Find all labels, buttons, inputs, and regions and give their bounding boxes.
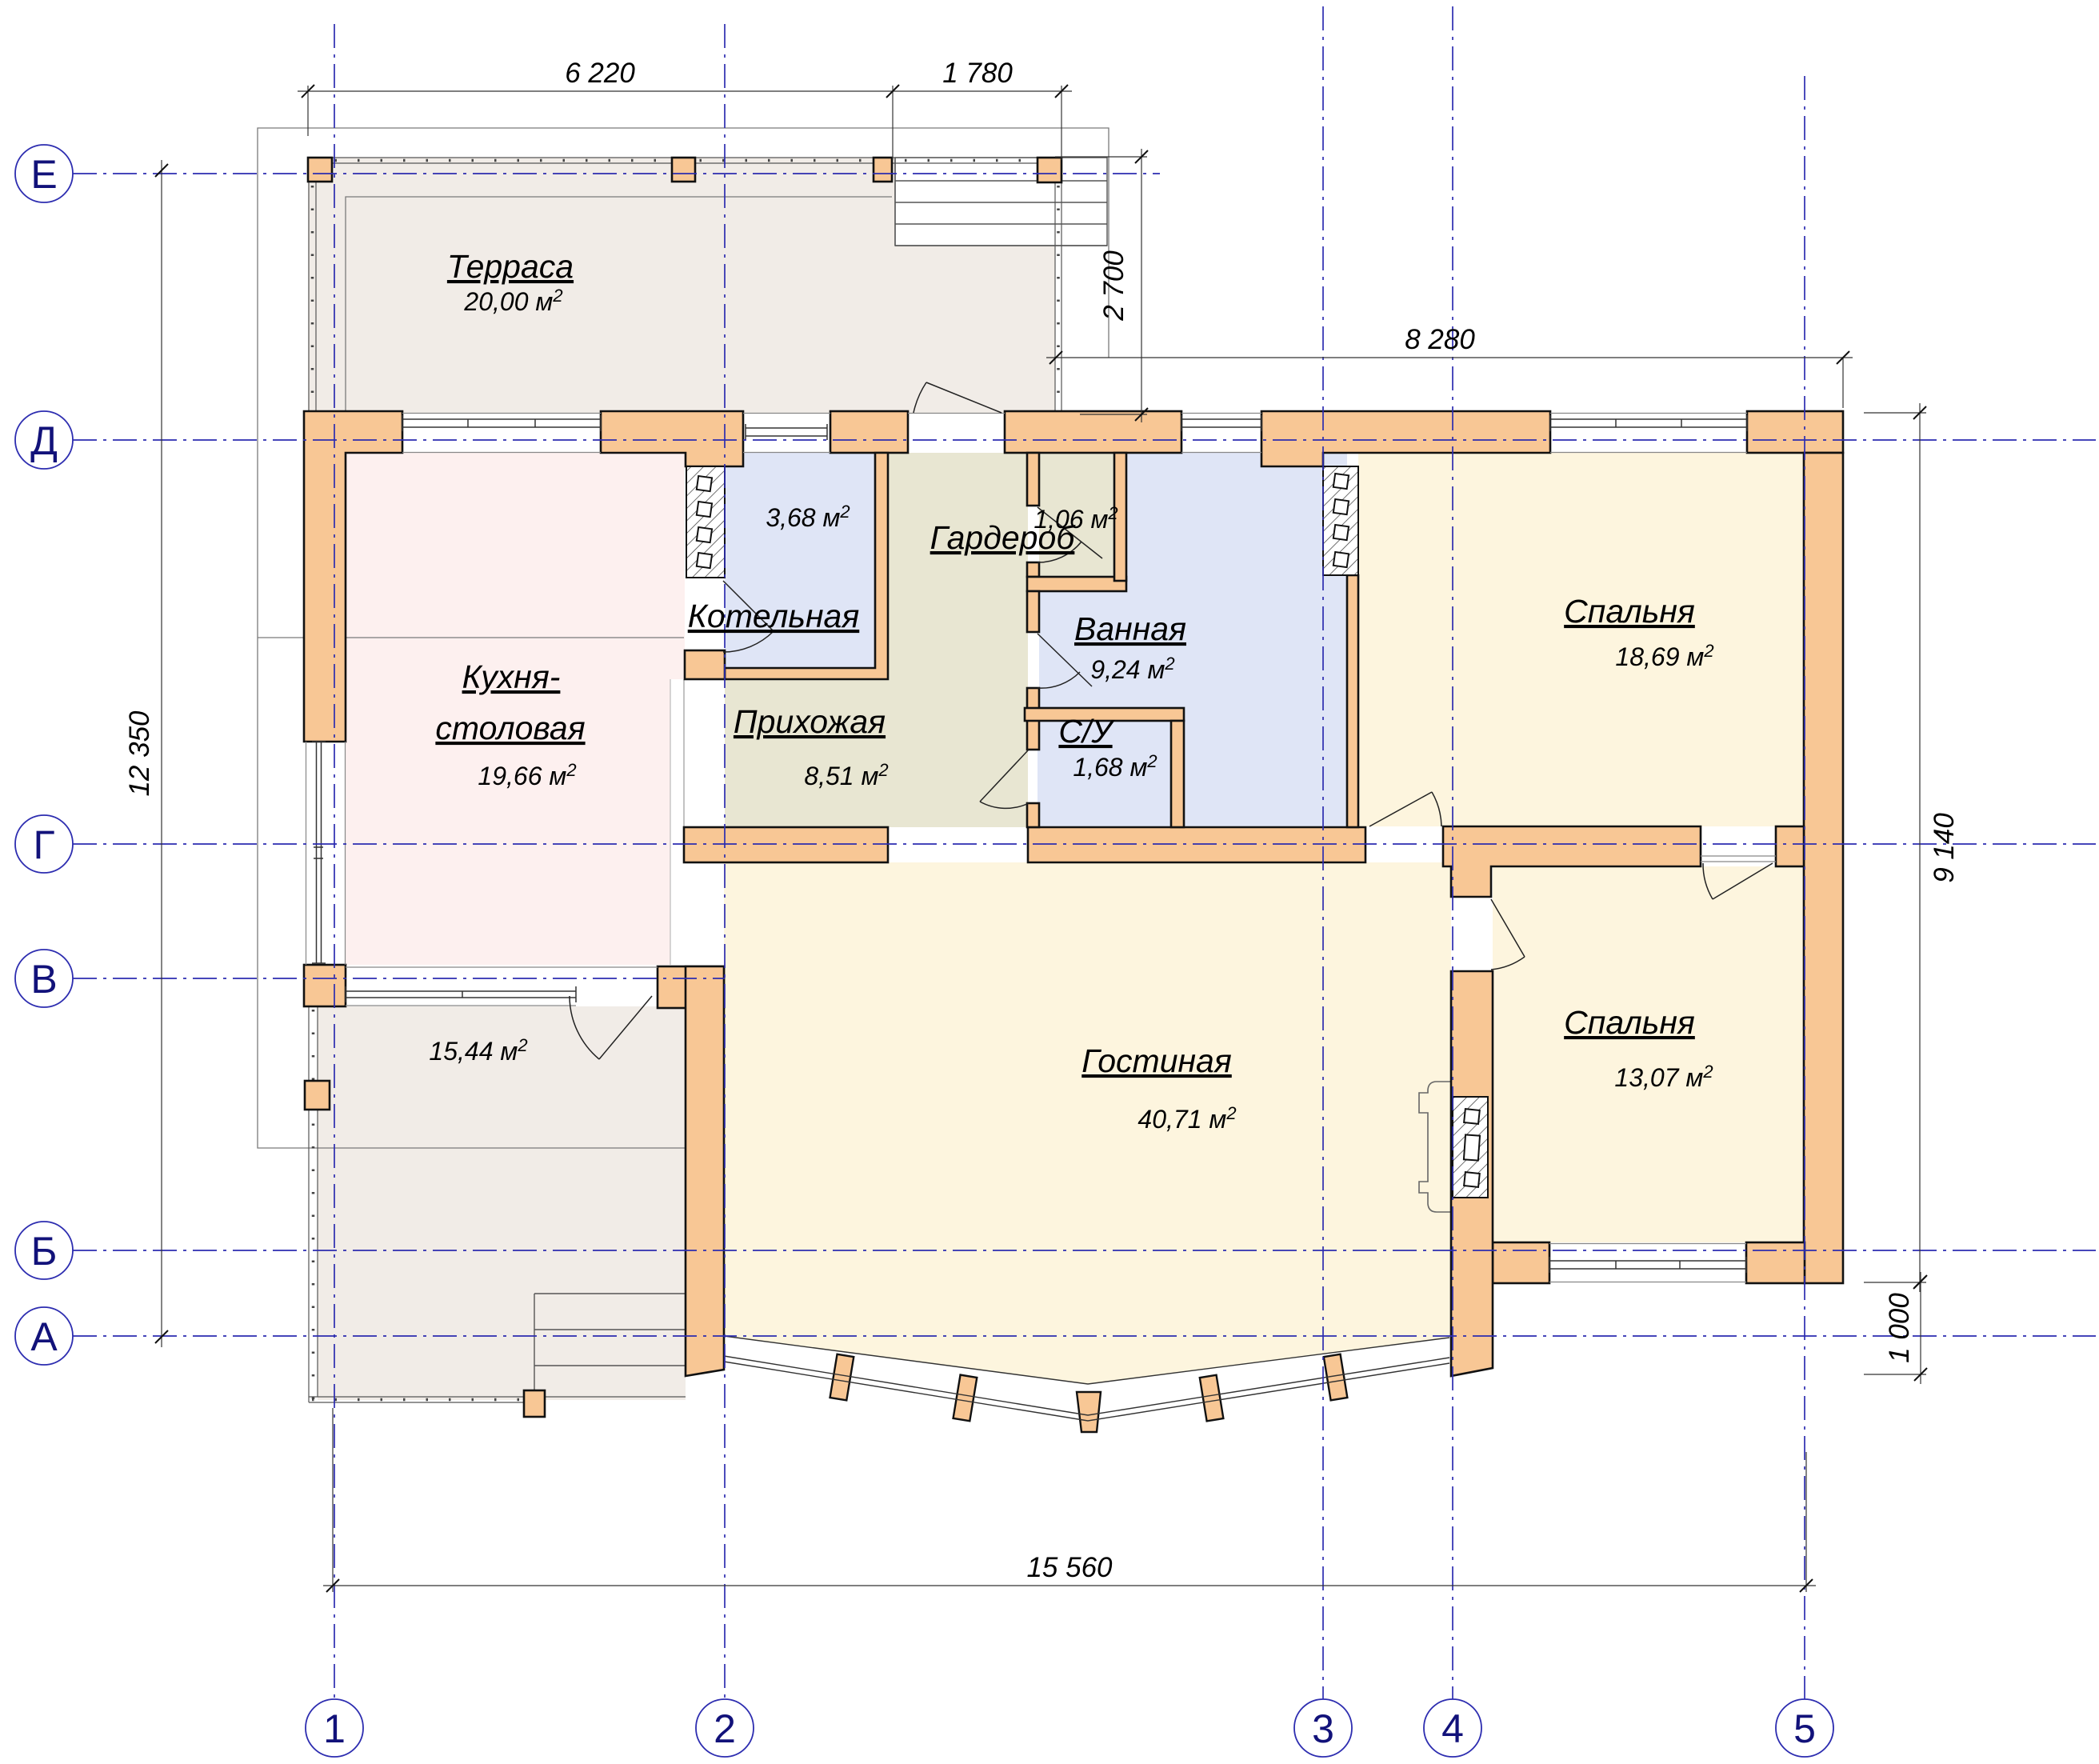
svg-text:1,68 м2: 1,68 м2 [1073, 751, 1157, 782]
svg-text:15 560: 15 560 [1026, 1552, 1113, 1583]
svg-text:столовая: столовая [435, 710, 585, 746]
svg-text:3: 3 [1312, 1706, 1334, 1751]
svg-text:8 280: 8 280 [1405, 324, 1475, 355]
svg-text:9,24 м2: 9,24 м2 [1090, 654, 1174, 684]
svg-text:1: 1 [323, 1706, 346, 1751]
svg-text:Прихожая: Прихожая [734, 703, 886, 740]
svg-text:Б: Б [31, 1229, 58, 1274]
svg-text:2: 2 [714, 1706, 736, 1751]
svg-text:Д: Д [30, 418, 58, 463]
svg-text:А: А [30, 1314, 58, 1359]
svg-text:9 140: 9 140 [1929, 813, 1960, 883]
svg-text:Г: Г [33, 822, 54, 867]
svg-text:Гостиная: Гостиная [1081, 1042, 1232, 1079]
svg-text:Терраса: Терраса [447, 248, 574, 285]
svg-text:Ванная: Ванная [1074, 610, 1186, 647]
svg-text:12 350: 12 350 [124, 710, 155, 797]
svg-text:1 780: 1 780 [942, 58, 1013, 89]
svg-text:5: 5 [1793, 1706, 1816, 1751]
svg-text:Е: Е [30, 152, 57, 197]
svg-text:1,06 м2: 1,06 м2 [1034, 503, 1117, 534]
svg-text:19,66 м2: 19,66 м2 [478, 760, 576, 790]
svg-text:2 700: 2 700 [1098, 250, 1129, 322]
svg-text:8,51 м2: 8,51 м2 [804, 760, 888, 790]
svg-text:40,71 м2: 40,71 м2 [1137, 1103, 1236, 1134]
svg-text:С/У: С/У [1058, 713, 1115, 750]
svg-text:Спальня: Спальня [1564, 593, 1695, 630]
svg-text:Кухня-: Кухня- [462, 658, 561, 695]
svg-text:Котельная: Котельная [688, 598, 860, 634]
svg-text:Спальня: Спальня [1564, 1004, 1695, 1041]
svg-text:13,07 м2: 13,07 м2 [1614, 1062, 1713, 1092]
svg-text:3,68 м2: 3,68 м2 [766, 502, 850, 532]
svg-text:15,44 м2: 15,44 м2 [429, 1035, 527, 1066]
svg-text:1 000: 1 000 [1884, 1293, 1915, 1363]
svg-text:20,00 м2: 20,00 м2 [463, 286, 562, 316]
svg-text:4: 4 [1441, 1706, 1464, 1751]
svg-text:В: В [30, 957, 57, 1002]
svg-text:6 220: 6 220 [565, 58, 635, 89]
svg-text:18,69 м2: 18,69 м2 [1615, 641, 1713, 671]
